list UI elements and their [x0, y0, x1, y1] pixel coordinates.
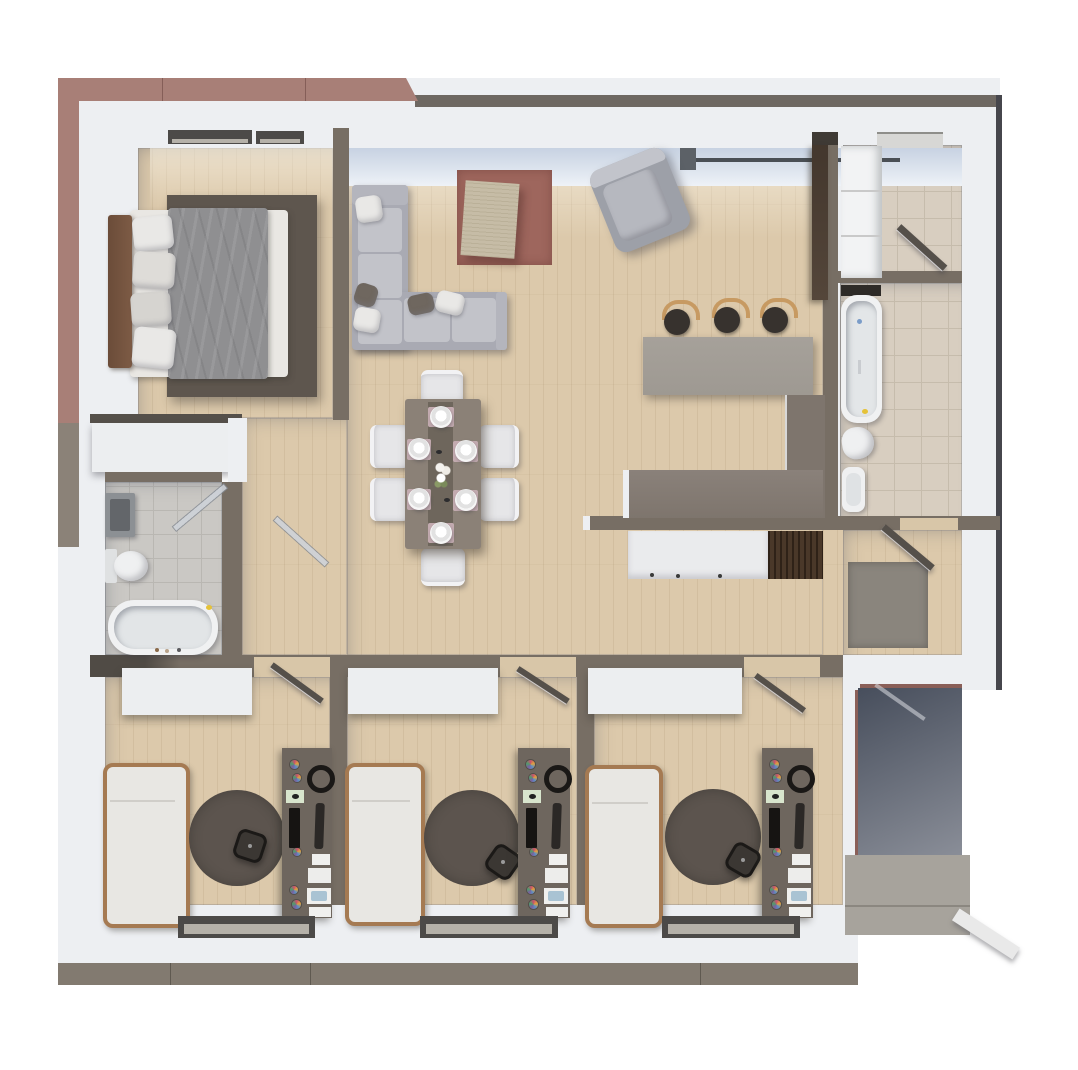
- wall-header-dark: [812, 132, 838, 145]
- wall-bath-left-east: [222, 482, 242, 655]
- dining-chair: [421, 548, 465, 586]
- window-mullion: [680, 148, 696, 170]
- cooktop-knob: [718, 574, 722, 578]
- mouse: [529, 794, 536, 799]
- office3-wardrobe: [588, 668, 742, 714]
- wall-hall-white: [228, 418, 247, 482]
- wall-bedroom-living: [333, 128, 349, 420]
- headphones: [307, 765, 335, 793]
- dining-chair: [479, 425, 519, 468]
- bar-counter: [643, 337, 813, 395]
- papers: [545, 868, 568, 883]
- toiletry: [155, 648, 159, 652]
- desk-trinket: [773, 848, 781, 856]
- tablet-screen: [791, 891, 807, 901]
- office2-window-sill: [426, 924, 552, 934]
- washer-dryer-stack: [841, 146, 882, 278]
- plate: [408, 488, 430, 510]
- sofa-pillow: [354, 194, 383, 223]
- coffee-table: [460, 180, 519, 259]
- mouse: [292, 794, 299, 799]
- wall-cap-white: [583, 516, 590, 530]
- tub-drain: [857, 319, 862, 324]
- desk-trinket: [529, 900, 538, 909]
- keyboard: [769, 808, 780, 848]
- sofa-pillow: [352, 306, 382, 334]
- facade-joint: [305, 78, 306, 101]
- pen-cup: [526, 760, 535, 769]
- plate: [455, 440, 477, 462]
- bathtub-basin: [114, 606, 212, 649]
- wood-appliance-block: [768, 531, 823, 579]
- plate: [430, 522, 452, 544]
- office1-bed-pillow-line: [110, 800, 175, 802]
- keyboard: [526, 808, 537, 848]
- cutlery: [444, 498, 450, 502]
- papers: [792, 854, 810, 865]
- sofa-armrest-end: [496, 292, 507, 350]
- desk-trinket: [527, 886, 535, 894]
- facade-mauve-left: [58, 78, 79, 423]
- tablet-screen: [548, 891, 564, 901]
- facade-joint: [162, 78, 163, 101]
- tub-accent: [862, 409, 868, 414]
- plate: [430, 406, 452, 428]
- bedroom-wardrobe: [92, 423, 232, 472]
- bed-pillow: [131, 214, 174, 252]
- cooktop-knob: [650, 573, 654, 577]
- desk-trinket: [530, 848, 538, 856]
- bar-stool-seat: [762, 307, 788, 333]
- bathtub-right-basin: [846, 301, 877, 417]
- kitchen-counter-horizontal: [628, 470, 823, 518]
- office2-wardrobe: [348, 668, 498, 714]
- papers: [788, 868, 811, 883]
- pen-cup: [770, 760, 779, 769]
- bar-stool-seat: [714, 307, 740, 333]
- office3-window-sill: [668, 924, 794, 934]
- bed-headboard: [108, 215, 132, 368]
- skylight: [877, 132, 943, 148]
- wall-under-wardrobe: [105, 472, 222, 482]
- tub-faucet: [858, 360, 861, 374]
- pen-cup: [290, 760, 299, 769]
- dining-chair: [479, 478, 519, 521]
- pen-cup: [773, 774, 781, 782]
- desk-trinket: [292, 900, 301, 909]
- cutlery: [436, 450, 442, 454]
- office2-bed-pillow-line: [352, 800, 410, 802]
- pen-cup: [293, 774, 301, 782]
- office2-chair-hub: [501, 860, 505, 864]
- desk-trinket: [290, 886, 298, 894]
- headphones: [544, 765, 572, 793]
- bed-pillow: [132, 251, 176, 290]
- facade-gray-left: [58, 423, 79, 547]
- facade-mauve-top: [58, 78, 418, 101]
- porch-step-line: [845, 905, 970, 907]
- roof-edge-strip: [415, 95, 1000, 107]
- pen-cup: [529, 774, 537, 782]
- tablet-screen: [311, 891, 327, 901]
- bed-pillow: [130, 291, 172, 328]
- terrace-joint: [170, 963, 171, 985]
- bedroom-window-sill: [172, 139, 248, 143]
- bidet-basin: [846, 473, 861, 506]
- floor-plan-canvas: [0, 0, 1078, 1070]
- bedroom-window-sill: [260, 139, 300, 143]
- dining-chair: [370, 425, 410, 468]
- papers: [308, 868, 331, 883]
- tall-cabinet: [812, 145, 828, 300]
- mouse: [772, 794, 779, 799]
- entry-mat: [848, 562, 928, 648]
- office1-wardrobe: [122, 668, 252, 715]
- tub-accent: [206, 605, 212, 610]
- headphones: [787, 765, 815, 793]
- appliance-seam: [841, 235, 882, 237]
- monitor: [314, 803, 325, 849]
- office1-desk: [282, 748, 332, 918]
- terrace-joint: [310, 963, 311, 985]
- office3-chair-hub: [741, 858, 745, 862]
- monitor: [794, 803, 805, 849]
- toilet: [114, 551, 148, 581]
- door-gap: [500, 657, 576, 677]
- office2-desk: [518, 748, 570, 918]
- hall-patch-floor: [823, 530, 843, 655]
- terrace-strip-bottom: [58, 963, 858, 985]
- papers: [312, 854, 330, 865]
- desk-trinket: [770, 886, 778, 894]
- wall-bedroom-south: [90, 414, 242, 423]
- porch-slab: [845, 855, 970, 935]
- plate: [408, 438, 430, 460]
- keyboard: [289, 808, 300, 848]
- office1-window-sill: [184, 924, 309, 934]
- counter-end-cap: [623, 470, 629, 518]
- door-gap: [254, 657, 330, 677]
- desk-trinket: [293, 848, 301, 856]
- cooktop-knob: [676, 574, 680, 578]
- roof-edge-right-line: [996, 95, 1002, 690]
- flower-centerpiece: [432, 460, 452, 490]
- appliance-seam: [841, 190, 882, 192]
- office3-bed-pillow-line: [592, 802, 648, 804]
- dining-chair: [370, 478, 410, 521]
- living-window-band: [347, 148, 823, 186]
- sink-basin: [110, 499, 130, 531]
- terrace-joint: [700, 963, 701, 985]
- plate: [455, 489, 477, 511]
- bed-duvet: [168, 208, 268, 379]
- porch-shadow: [858, 688, 962, 860]
- bar-stool-seat: [664, 309, 690, 335]
- bed-pillow: [131, 326, 177, 370]
- door-gap-entry: [900, 518, 958, 530]
- office2-bed: [345, 763, 425, 926]
- monitor: [551, 803, 562, 849]
- desk-trinket: [772, 900, 781, 909]
- toiletry: [165, 649, 169, 653]
- office1-bed: [103, 763, 190, 928]
- office3-bed: [585, 765, 663, 928]
- toiletry: [177, 648, 181, 652]
- papers: [549, 854, 567, 865]
- office1-chair-hub: [248, 844, 252, 848]
- kitchen-lower-counter: [628, 531, 768, 579]
- office3-desk: [762, 748, 813, 918]
